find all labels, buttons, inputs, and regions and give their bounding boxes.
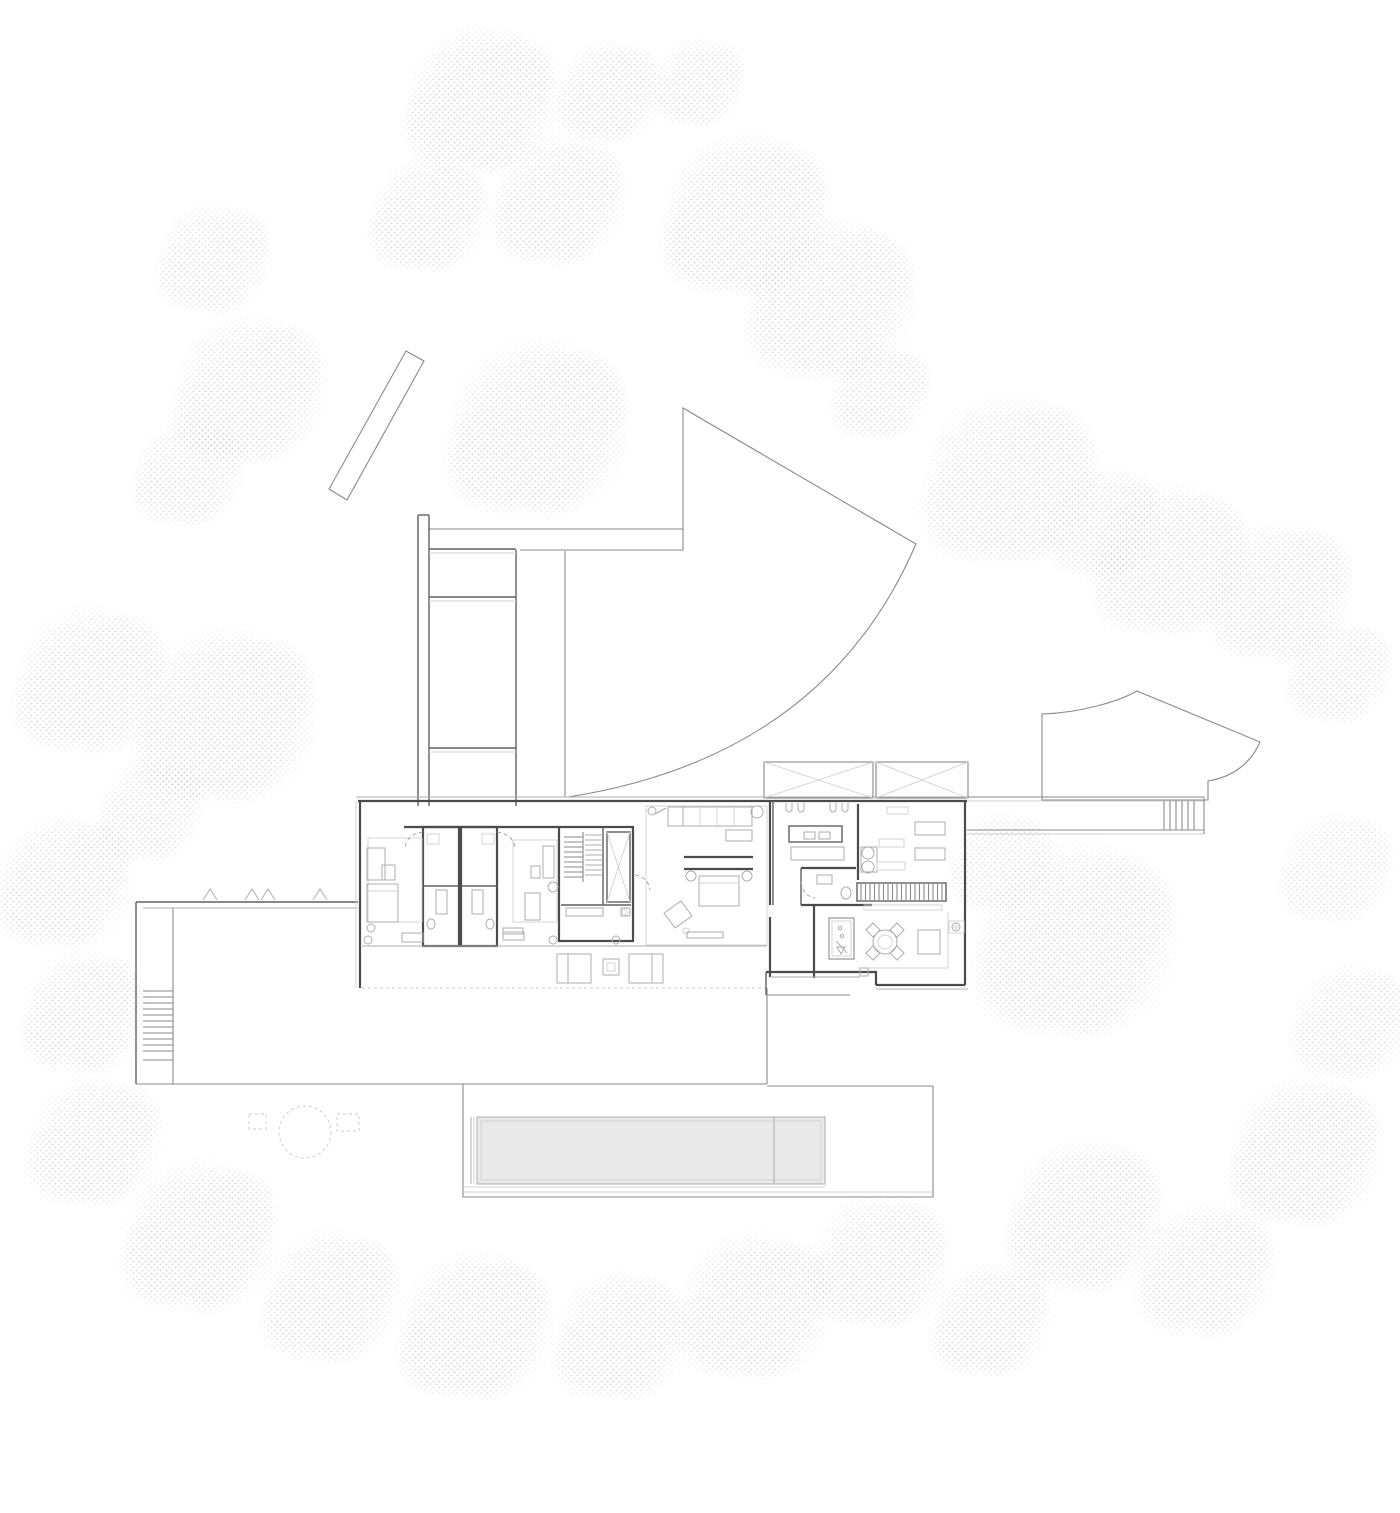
terrace-furniture	[557, 954, 663, 983]
powder-sink	[817, 875, 832, 884]
bedroom-a-bed	[367, 884, 398, 922]
rug-strip	[687, 932, 723, 938]
billiard-felt	[832, 921, 851, 956]
pool-area	[463, 1084, 933, 1197]
tree-canopy	[649, 34, 748, 130]
bench-cushion	[819, 832, 830, 839]
stove-burner	[862, 847, 874, 859]
tree-canopy	[391, 1246, 557, 1406]
dining-chair	[866, 923, 880, 937]
planter	[402, 933, 423, 942]
core-a-vanity	[436, 890, 447, 914]
roof-vent-triangle	[203, 889, 217, 900]
stair-core	[561, 827, 631, 916]
coat-hook	[830, 803, 836, 812]
roof-vent-triangle	[245, 889, 259, 900]
side-table-inner	[607, 963, 615, 971]
tree-canopy	[437, 332, 636, 524]
lounger	[629, 954, 663, 983]
ramp-hatch	[861, 884, 942, 900]
sill-marker	[364, 936, 372, 944]
ramp-shelf	[864, 905, 942, 910]
garden-chair-dashed	[337, 1114, 359, 1131]
site-plan-page	[0, 0, 1400, 1513]
east-wing-furniture	[786, 803, 964, 976]
lamp-arm	[655, 808, 666, 814]
dining-chair	[890, 946, 904, 960]
kitchen-island	[915, 848, 945, 860]
bedroom-b-dresser	[531, 866, 540, 878]
east-terrace-outline	[1042, 691, 1260, 800]
core-a-shower	[427, 834, 439, 844]
tree-canopy	[547, 1266, 692, 1406]
stove-burner	[862, 861, 874, 873]
tree-canopy	[1221, 1072, 1387, 1232]
kitchen-table	[877, 862, 905, 870]
stair-block	[559, 827, 633, 941]
bedroom-b-bed	[525, 893, 540, 920]
ramp-slab	[329, 351, 424, 500]
bedroom-b-wardrobe	[543, 846, 554, 878]
bedroom-b-nightstand	[548, 882, 558, 892]
floor-lamp	[648, 807, 656, 815]
tree-canopy	[551, 37, 665, 147]
tree-canopy	[1274, 808, 1398, 928]
armchair-rotated	[664, 901, 692, 928]
armchair-stool	[683, 928, 689, 934]
tree-canopy	[1286, 960, 1400, 1084]
dining-table-inner	[878, 935, 892, 949]
core-b-shower	[482, 834, 494, 844]
roof-vent-triangle	[261, 889, 275, 900]
core-b-vanity	[472, 890, 483, 914]
lounger	[557, 954, 591, 983]
house-walls	[356, 797, 968, 995]
bedroom-a-nightstand	[367, 924, 375, 932]
billiard-ball	[838, 926, 841, 929]
side-table	[603, 959, 619, 975]
entry-table	[791, 847, 844, 860]
dining-chair	[890, 923, 904, 937]
planter	[503, 932, 524, 940]
kitchen-island	[915, 822, 945, 835]
coat-hook	[798, 803, 804, 812]
door-arc	[635, 875, 650, 890]
master-bed	[699, 876, 739, 906]
door-arc	[801, 882, 815, 898]
console-stool	[686, 871, 696, 881]
tree-canopy	[151, 198, 275, 318]
tree-canopy	[0, 810, 138, 954]
garden-table-dashed	[279, 1106, 331, 1158]
skylights	[764, 762, 968, 798]
site-plan-drawing	[0, 0, 1400, 1513]
bedroom-b-bench	[503, 928, 523, 934]
tree-canopy	[15, 946, 152, 1078]
kitchen-table	[879, 839, 904, 847]
kitchen-shelf	[887, 807, 908, 814]
powder-wc	[841, 887, 851, 899]
pool-basin	[477, 1117, 825, 1184]
core-a-wc	[427, 919, 435, 929]
east-walkway-steps	[1164, 801, 1194, 830]
master-suite-furniture	[646, 806, 767, 945]
door-arc	[497, 832, 515, 848]
console-stool	[742, 871, 752, 881]
dining-chair	[866, 946, 880, 960]
bedroom-a-dresser	[382, 865, 395, 880]
chaise	[668, 807, 683, 826]
bench-cushion	[804, 832, 815, 839]
stair-room-fixture	[622, 909, 628, 915]
roof-vent-triangle	[313, 889, 327, 900]
coffee-table	[726, 830, 752, 841]
bedroom-furniture	[364, 832, 815, 944]
door-arc	[405, 832, 423, 848]
core-b-wc	[486, 919, 494, 929]
bedroom-b-floor	[513, 840, 557, 922]
plant-pot	[751, 806, 763, 818]
coat-hook	[842, 803, 848, 812]
billiard-ball	[840, 934, 843, 937]
garden-chair-dashed	[249, 1114, 266, 1129]
sofa	[683, 807, 752, 826]
floor-rug	[918, 930, 940, 954]
stair-treads-right	[585, 835, 603, 875]
tree-canopy	[943, 807, 1057, 917]
coat-hook	[786, 803, 792, 812]
kitchen-counter	[861, 847, 877, 872]
stair-treads-left	[564, 837, 583, 877]
tree-canopy	[128, 414, 248, 530]
sill-marker	[549, 936, 557, 944]
billiard-rack	[837, 947, 845, 954]
stair-room-console	[566, 908, 603, 916]
